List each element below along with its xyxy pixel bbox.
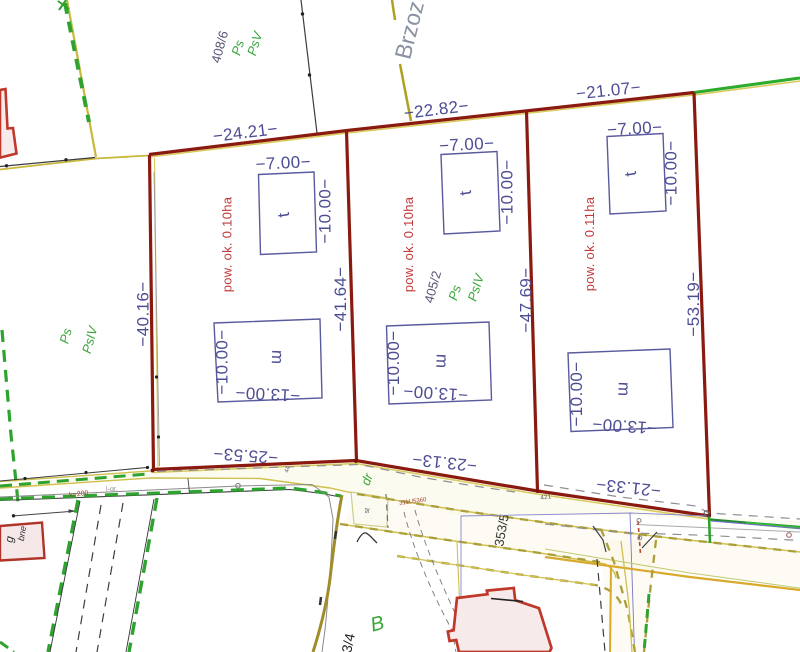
- svg-text:−53.19−: −53.19−: [684, 271, 703, 336]
- svg-text:pow. ok. 0.10ha: pow. ok. 0.10ha: [401, 196, 416, 292]
- svg-text:m: m: [268, 350, 287, 365]
- svg-text:−10.00−: −10.00−: [567, 361, 586, 426]
- svg-text:m: m: [432, 354, 451, 369]
- svg-text:−10.00−: −10.00−: [662, 140, 681, 205]
- svg-text:−10.00−: −10.00−: [316, 178, 335, 243]
- svg-text:−7.00−: −7.00−: [255, 152, 311, 174]
- svg-text:−40.16−: −40.16−: [134, 281, 153, 346]
- svg-text:pow. ok. 0.10ha: pow. ok. 0.10ha: [220, 196, 235, 292]
- svg-text:m: m: [614, 382, 633, 397]
- svg-text:l-gr.: l-gr.: [106, 486, 118, 494]
- svg-text:−7.00−: −7.00−: [439, 134, 495, 156]
- svg-text:−13.00−: −13.00−: [235, 383, 301, 405]
- svg-text:−10.00−: −10.00−: [498, 159, 517, 224]
- svg-text:−10.00−: −10.00−: [384, 330, 403, 395]
- svg-text:pow. ok. 0.11ha: pow. ok. 0.11ha: [582, 196, 597, 291]
- svg-text:−7.00−: −7.00−: [607, 118, 663, 140]
- svg-text:−47.69−: −47.69−: [517, 267, 536, 332]
- svg-text:−41.64−: −41.64−: [331, 266, 350, 331]
- svg-text:−10.00−: −10.00−: [213, 329, 232, 394]
